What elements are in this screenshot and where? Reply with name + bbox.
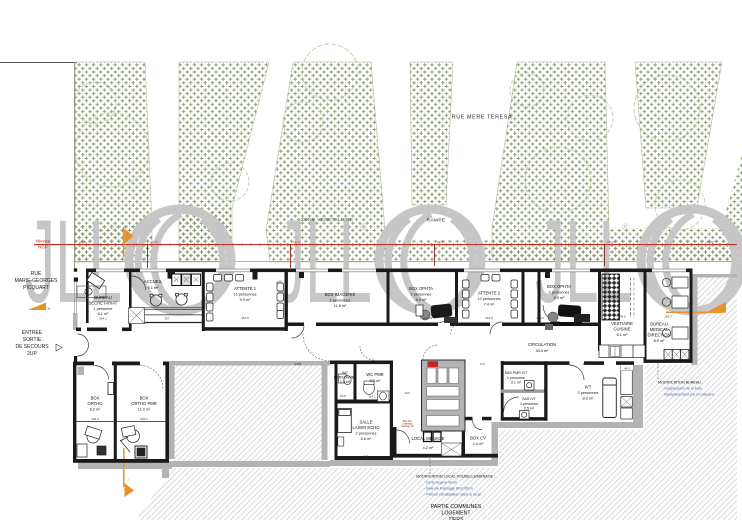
svg-text:ENTREE: ENTREE [22, 330, 43, 336]
svg-text:8.3 m²: 8.3 m² [583, 397, 594, 401]
svg-text:1 personne: 1 personne [520, 402, 538, 406]
svg-text:364.6: 364.6 [241, 316, 249, 320]
svg-text:43.72: 43.72 [150, 240, 158, 244]
svg-text:364.1: 364.1 [99, 317, 107, 321]
svg-text:passage 90: passage 90 [401, 425, 414, 428]
svg-text:1403: 1403 [295, 362, 302, 366]
svg-text:BUREAU: BUREAU [650, 322, 667, 327]
svg-text:CIRCULATION: CIRCULATION [528, 342, 556, 347]
svg-text:ZONE VEGETALISEE: ZONE VEGETALISEE [301, 217, 353, 223]
svg-text:®: ® [110, 222, 117, 232]
svg-text:PERSONNEL: PERSONNEL [334, 376, 356, 380]
svg-text:265: 265 [363, 455, 368, 459]
svg-text:SORTIE: SORTIE [23, 337, 42, 343]
svg-text:8.6 m²: 8.6 m² [416, 298, 427, 302]
svg-text:DIRECTION: DIRECTION [647, 333, 670, 338]
svg-text:SALLE: SALLE [359, 420, 372, 425]
svg-text:240.1: 240.1 [140, 417, 148, 421]
svg-text:364.9: 364.9 [485, 316, 493, 320]
svg-text:ORTHO PMR: ORTHO PMR [131, 401, 157, 406]
svg-text:8.1 m²: 8.1 m² [617, 333, 628, 337]
svg-text:MODIFICATION LOCAL POUBELLE/ME: MODIFICATION LOCAL POUBELLE/MENAGE : [416, 475, 495, 479]
svg-text:2 personnes: 2 personnes [578, 391, 599, 395]
svg-text:BOX OPHTA: BOX OPHTA [409, 286, 433, 291]
svg-text:8.0 m²: 8.0 m² [654, 339, 665, 343]
svg-text:a: a [48, 307, 50, 311]
svg-text:VESTIAIRE: VESTIAIRE [611, 321, 633, 326]
svg-text:7.4 m²: 7.4 m² [484, 303, 495, 307]
svg-text:2 personnes: 2 personnes [411, 293, 432, 297]
svg-text:2UP: 2UP [27, 351, 37, 357]
svg-text:42.73: 42.73 [437, 240, 445, 244]
svg-text:ATTENTE 1: ATTENTE 1 [234, 286, 257, 291]
svg-text:2.5 m²: 2.5 m² [524, 407, 535, 411]
svg-text:MARIE-GEORGES: MARIE-GEORGES [15, 278, 58, 284]
svg-text:®: ® [360, 222, 367, 232]
svg-text:9.9 m²: 9.9 m² [240, 298, 251, 302]
svg-text:RUE: RUE [31, 271, 42, 277]
svg-text:JLL: JLL [275, 196, 372, 328]
svg-text:ACCUEIL: ACCUEIL [144, 279, 163, 284]
svg-text:1.5 m²: 1.5 m² [340, 380, 351, 384]
svg-text:2 personnes: 2 personnes [356, 432, 377, 436]
svg-text:BOX OPHTA: BOX OPHTA [547, 284, 571, 289]
svg-text:108.8: 108.8 [426, 454, 434, 458]
svg-text:- porte largeur 90cm: - porte largeur 90cm [424, 481, 457, 485]
svg-text:190.2: 190.2 [536, 316, 544, 320]
svg-text:MODIFICATION BUREAU :: MODIFICATION BUREAU : [658, 381, 703, 385]
svg-text:6.6 m²: 6.6 m² [361, 437, 372, 441]
svg-text:1 personne: 1 personne [507, 376, 525, 380]
svg-text:PARTIE COMMUNES: PARTIE COMMUNES [431, 504, 482, 510]
svg-text:BOX: BOX [140, 396, 149, 401]
svg-text:11.6 m²: 11.6 m² [334, 304, 347, 308]
svg-text:2 personnes: 2 personnes [549, 291, 570, 295]
svg-text:BUREAU: BUREAU [94, 295, 111, 300]
svg-text:- Remplacement par un placar: - Remplacement par un placard [662, 393, 714, 397]
svg-text:15 personnes: 15 personnes [233, 293, 256, 297]
svg-text:44.2: 44.2 [624, 366, 630, 370]
svg-text:126.5: 126.5 [474, 454, 482, 458]
svg-text:196.6: 196.6 [618, 315, 626, 319]
svg-text:10 personnes: 10 personnes [477, 297, 500, 301]
svg-text:NGF: NGF [38, 245, 48, 250]
svg-text:WC: WC [342, 371, 348, 375]
svg-text:- Baie de brassage 80x100cm: - Baie de brassage 80x100cm [424, 487, 473, 491]
svg-text:192.7: 192.7 [664, 315, 672, 319]
svg-text:43.72: 43.72 [293, 240, 301, 244]
svg-text:RUE MERE TERESA: RUE MERE TERESA [452, 115, 512, 121]
svg-text:- Prévoir climatisation dan: - Prévoir climatisation dans le local [424, 493, 481, 497]
svg-text:LOCAL MENAGE: LOCAL MENAGE [412, 436, 445, 441]
svg-text:DE SECOURS: DE SECOURS [15, 344, 49, 350]
svg-text:SAS PMR IVT: SAS PMR IVT [505, 371, 529, 375]
svg-text:337: 337 [164, 317, 169, 321]
svg-text:3.0 m²: 3.0 m² [370, 379, 381, 383]
svg-text:SAS IVT: SAS IVT [522, 397, 537, 401]
svg-text:Niveau: Niveau [36, 239, 51, 244]
svg-text:LOGEMENT: LOGEMENT [441, 511, 471, 517]
svg-text:9.1 m²: 9.1 m² [148, 286, 159, 290]
svg-text:ATTENTE 2: ATTENTE 2 [478, 291, 501, 296]
svg-text:42.13: 42.13 [607, 240, 615, 244]
svg-text:BOX IMAGERIE: BOX IMAGERIE [325, 292, 356, 297]
svg-text:ORTHO: ORTHO [87, 401, 103, 406]
svg-text:- Suppression de la baie: - Suppression de la baie [662, 387, 702, 391]
svg-text:140: 140 [404, 391, 409, 395]
svg-text:222.61: 222.61 [423, 316, 433, 320]
svg-text:206: 206 [526, 362, 531, 366]
svg-text:8.2 m²: 8.2 m² [90, 408, 101, 412]
svg-text:43.0 m²: 43.0 m² [536, 349, 550, 353]
svg-text:1 personne: 1 personne [94, 307, 113, 311]
svg-text:311.8: 311.8 [582, 362, 590, 366]
svg-text:4.2 m²: 4.2 m² [423, 446, 434, 450]
svg-text:BOX CV: BOX CV [470, 436, 486, 441]
svg-text:®: ® [622, 222, 629, 232]
svg-text:2 personnes: 2 personnes [330, 299, 351, 303]
svg-text:MEDICAL: MEDICAL [650, 327, 669, 332]
svg-text:CUISINE: CUISINE [614, 327, 631, 332]
svg-text:6.1 m²: 6.1 m² [98, 312, 109, 316]
svg-text:SECRETARIAT: SECRETARIAT [89, 301, 118, 306]
svg-text:170: 170 [479, 362, 484, 366]
svg-text:43.19: 43.19 [706, 240, 714, 244]
svg-text:LASER ECHO: LASER ECHO [353, 425, 381, 430]
svg-text:PICQUART: PICQUART [23, 285, 49, 291]
svg-text:WC PMR: WC PMR [366, 372, 383, 377]
svg-text:104.4: 104.4 [91, 417, 99, 421]
svg-text:8.9 m²: 8.9 m² [554, 296, 565, 300]
svg-text:BOX: BOX [91, 396, 100, 401]
svg-text:11.0 m²: 11.0 m² [138, 408, 151, 412]
svg-text:84.8: 84.8 [340, 394, 346, 398]
svg-text:114.2: 114.2 [368, 395, 376, 399]
svg-text:2.4 m²: 2.4 m² [473, 442, 484, 446]
svg-text:3.1 m²: 3.1 m² [511, 381, 522, 385]
svg-text:IVT: IVT [585, 385, 592, 390]
svg-text:RAMPE: RAMPE [426, 218, 445, 224]
svg-text:44.26: 44.26 [79, 240, 87, 244]
